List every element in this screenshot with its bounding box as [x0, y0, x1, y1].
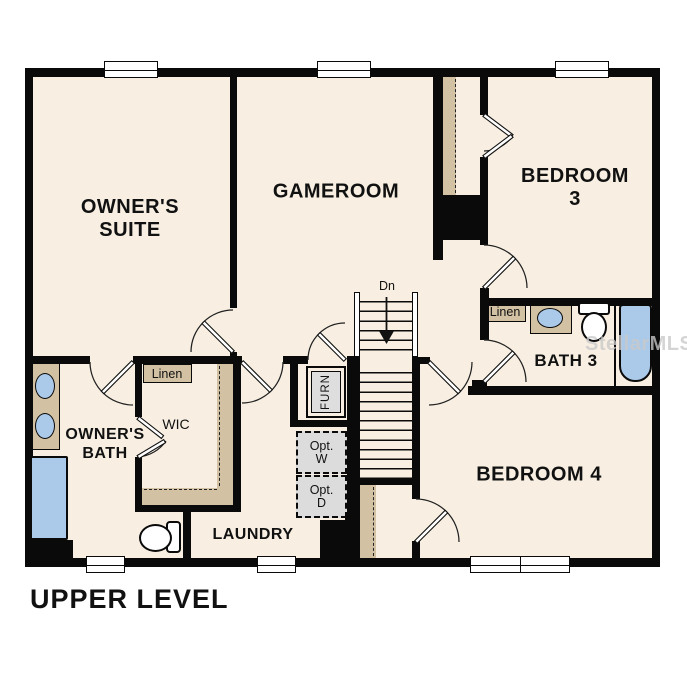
plan-title: UPPER LEVEL [30, 584, 229, 615]
watermark: StellarMLS [585, 333, 687, 356]
room-label-gameroom: GAMEROOM [273, 181, 399, 204]
label-stairs-down: Dn [379, 279, 395, 293]
room-label-wic: WIC [162, 416, 189, 432]
door-leaves [101, 114, 515, 544]
stairs-down-arrow [379, 297, 394, 344]
room-label-owners-bath: OWNER'S BATH [65, 425, 144, 463]
label-linen-owner: Linen [152, 367, 183, 381]
room-label-laundry: LAUNDRY [212, 526, 293, 544]
label-linen-bath3: Linen [490, 305, 521, 319]
room-label-bedroom3: BEDROOM 3 [519, 165, 631, 211]
room-label-owners-suite: OWNER'S SUITE [81, 196, 179, 242]
floor-plan-page: { "title": "UPPER LEVEL", "watermark": "… [0, 0, 687, 687]
room-label-bedroom4: BEDROOM 4 [476, 464, 602, 487]
